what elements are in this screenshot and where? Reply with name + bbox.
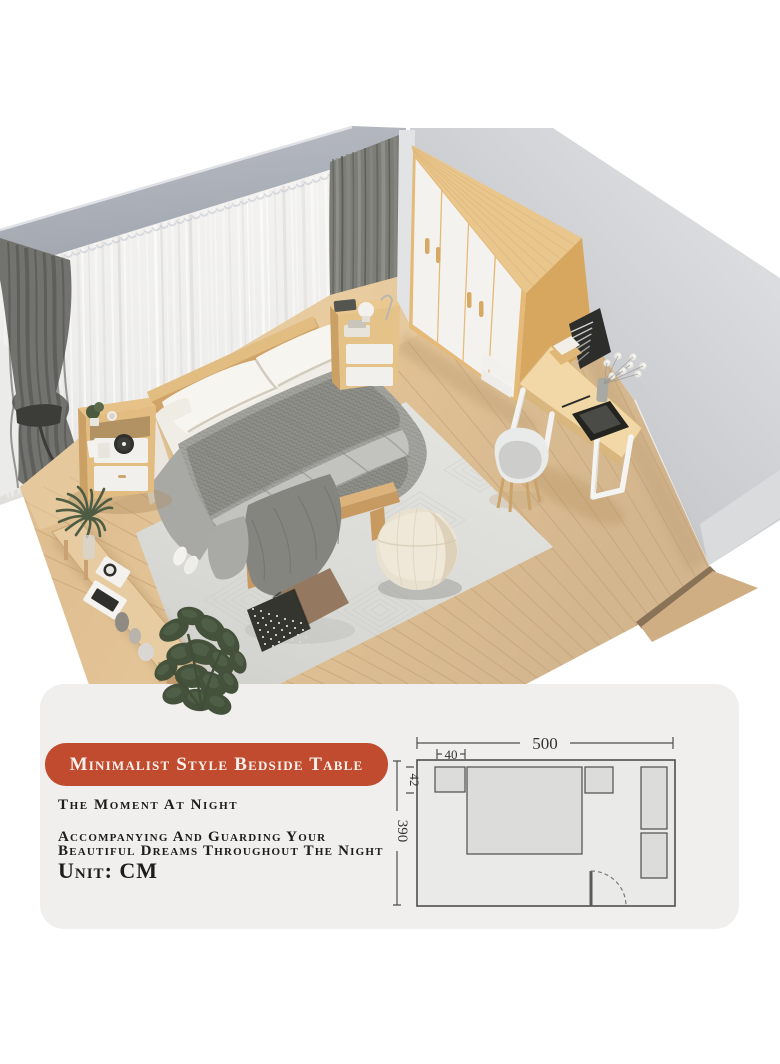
svg-text:500: 500 xyxy=(532,734,558,753)
svg-text:390: 390 xyxy=(394,820,410,843)
svg-text:40: 40 xyxy=(445,747,458,762)
svg-text:42: 42 xyxy=(407,774,422,787)
